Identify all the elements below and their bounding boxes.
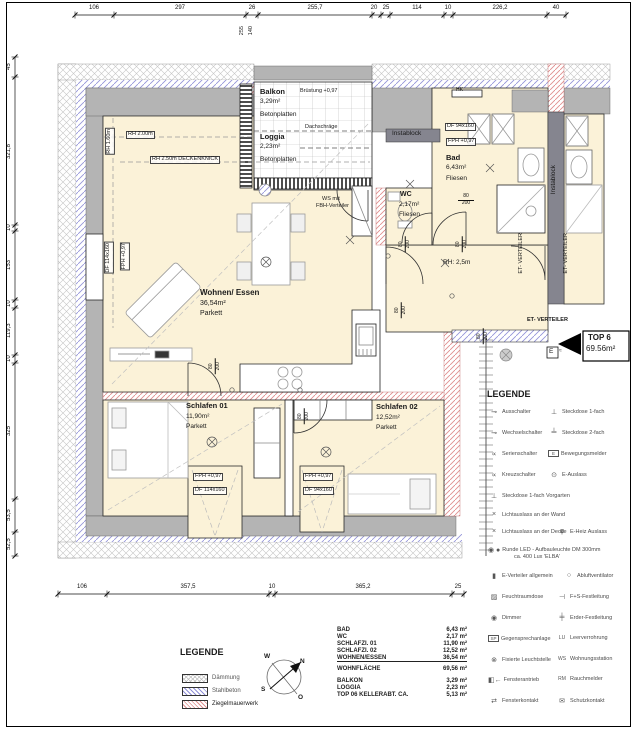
legend-item: ⊥Steckdose 1-fach Vorgarten — [488, 492, 570, 500]
sill-height-bad-label: FPH +0,97 — [446, 138, 476, 146]
legend-item: ⊥Steckdose 1-fach — [548, 408, 605, 416]
legend-item: φE-Heiz Auslass — [556, 528, 607, 535]
room-area-schlafen02: 12,52m² — [376, 414, 400, 421]
room-label-schlafen01: Schlafen 01 — [186, 402, 228, 410]
top6-area: 69.56m² — [586, 345, 615, 354]
parapet-label: Brüstung +0,97 — [300, 89, 337, 95]
dim-label: 106 — [68, 584, 96, 590]
legend-item: ◉ ●Runde LED - Aufbauleuchte DM 300mm — [488, 546, 600, 554]
table-row-total: WOHNFLÄCHE69,56 m² — [337, 666, 467, 672]
dim-label: 255,7 — [301, 5, 329, 11]
legend-item: ▮E-Verteiler allgemein — [488, 572, 553, 580]
dim-label: 10 — [434, 5, 462, 11]
dim-side-255: 255 — [240, 26, 246, 35]
dim-label: 25 — [372, 5, 400, 11]
cross-switch-icon: ∝ — [488, 471, 500, 479]
concrete-label: Stahlbeton — [212, 688, 241, 694]
roof-window-bad-label: DF 94x160 — [445, 123, 476, 131]
legend-item: ◧←Fensterantrieb — [488, 676, 539, 684]
instablock-label-v: Instablock — [550, 165, 557, 194]
dimmer-icon: ◉ — [488, 614, 500, 622]
roof-window-s02-label: DF 94x160 — [303, 487, 334, 495]
insulation-label: Dämmung — [212, 675, 240, 681]
door-size-label: 80200 — [209, 358, 222, 374]
legend-item: ⊣F+S-Festleitung — [556, 593, 609, 601]
room-area-balkon: 3,29m² — [260, 98, 280, 105]
top6-label: TOP 6 — [588, 334, 611, 343]
door-size-label: 80200 — [456, 236, 469, 252]
dim-label: 325 — [6, 417, 12, 445]
legend-item: ×Lichtauslass an der Wand — [488, 511, 565, 518]
dim-label: 321,8 — [6, 137, 12, 165]
intercom-icon: SP — [488, 635, 499, 642]
legend-item: ╪Erder-Festleitung — [556, 614, 612, 621]
room-floor-schlafen02: Parkett — [376, 424, 397, 431]
room-label-wc: WC — [400, 191, 412, 199]
table-row: WOHNEN/ESSEN36,54 m² — [337, 655, 467, 662]
room-height-200-label: RH 2.00m — [126, 131, 155, 139]
socket-outdoor-icon: ⊥ — [488, 492, 500, 500]
legend-item: ⊸Wechselschalter — [488, 429, 542, 437]
glazing-west — [240, 84, 252, 188]
dim-side-140: 140 — [249, 26, 255, 35]
et-verteiler-label-v1: ET- VERTEILER — [519, 233, 525, 274]
table-row: BAD6,43 m² — [337, 627, 467, 633]
mail-contact-icon: ✉ — [556, 697, 568, 705]
window-contact-icon: ⇄ — [488, 697, 500, 705]
legend-item: ∝Kreuzschalter — [488, 471, 536, 479]
room-floor-wohnen: Parkett — [200, 310, 222, 318]
dim-label: 10 — [6, 214, 12, 242]
dim-label: 357,5 — [174, 584, 202, 590]
e-box-label: E — [549, 348, 553, 355]
dim-label: 45 — [6, 53, 12, 81]
legend-item: ○Abluftventilator — [563, 572, 613, 579]
door-size-label: 80200 — [298, 408, 311, 424]
legend-item: ⊗Fixierte Leuchtstelle — [488, 656, 551, 664]
room-label-bad: Bad — [446, 154, 460, 162]
instablock-column — [548, 112, 564, 304]
room-area-wohnen: 36,54m² — [200, 300, 226, 308]
legend-item: ✉Schutzkontakt — [556, 697, 605, 705]
legend-electrical-title: LEGENDE — [487, 390, 531, 400]
room-label-wohnen: Wohnen/ Essen — [200, 289, 259, 298]
window-drive-icon: ◧← — [488, 676, 502, 684]
dim-label: 53,5 — [6, 501, 12, 529]
fs-line-icon: ⊣ — [556, 593, 568, 601]
dim-label: 226,2 — [486, 5, 514, 11]
dim-label: 114 — [403, 5, 431, 11]
sill-height-west-label: FPH +0,97 — [120, 242, 130, 270]
roof-slope-label: Dachschräge — [305, 125, 337, 131]
door-size-label: 80200 — [399, 236, 412, 252]
smoke-detector-icon: RM — [556, 676, 568, 682]
brick-label: Ziegelmauerwerk — [212, 701, 258, 707]
legend-item: ⇄Fensterkontakt — [488, 697, 538, 705]
socket-double-icon: ╧ — [548, 429, 560, 436]
ceiling-light-icon: × — [488, 528, 500, 535]
fan-icon: ○ — [563, 572, 575, 579]
two-way-switch-icon: ⊸ — [488, 429, 500, 437]
compass-west-label: W — [264, 653, 270, 660]
room-height-25-label: RH: 2,5m — [443, 259, 470, 266]
led-light-icon: ◉ ● — [488, 546, 500, 554]
wall-light-icon: × — [488, 511, 500, 518]
dim-label: 106 — [80, 5, 108, 11]
socket-single-icon: ⊥ — [548, 408, 560, 416]
et-verteiler-label-v2: ET- VERTEILER — [564, 233, 570, 274]
floorplan-sheet: Balkon 3,29m² Betonplatten Loggia 2,23m²… — [0, 0, 637, 729]
e-box-mark: ≈ — [559, 349, 562, 354]
e-heater-icon: φ — [556, 528, 568, 535]
dim-label: 52,5 — [6, 530, 12, 558]
room-area-schlafen01: 11,90m² — [186, 413, 209, 420]
dim-label: 26 — [238, 5, 266, 11]
table-row: WC2,17 m² — [337, 634, 467, 640]
dim-label: 10 — [6, 290, 12, 318]
towel-radiator-label: HK — [456, 88, 463, 93]
room-height-160-label: RH 1.60m — [105, 128, 115, 155]
room-floor-schlafen01: Parkett — [186, 423, 207, 430]
room-area-wc: 2,17m² — [399, 201, 419, 208]
table-row: LOGGIA2,23 m² — [337, 685, 467, 691]
dim-label: 365,2 — [349, 584, 377, 590]
dim-label: 10 — [258, 584, 286, 590]
motion-detector-icon: E — [548, 450, 559, 457]
sill-height-s02-label: FPH +0,97 — [303, 473, 333, 481]
legend-materials-title: LEGENDE — [180, 648, 224, 658]
table-row: SCHLAFZI. 0111,90 m² — [337, 641, 467, 647]
legend-item: ╧Steckdose 2-fach — [548, 429, 605, 436]
legend-item: LULeerverrohrung — [556, 635, 608, 641]
compass-east-label: O — [298, 694, 303, 701]
roof-window-west-label: DF 114x160 — [104, 242, 114, 274]
room-label-loggia: Loggia — [260, 133, 285, 141]
legend-item: EBewegungsmelder — [548, 450, 607, 457]
legend-item: ∝Serienschalter — [488, 450, 537, 458]
room-area-bad: 6,43m² — [446, 164, 466, 171]
sill-height-s01-label: FPH +0,97 — [193, 473, 223, 481]
fixed-light-icon: ⊗ — [488, 656, 500, 664]
room-area-loggia: 2,23m² — [260, 143, 280, 150]
legend-item: ⊙E-Auslass — [548, 471, 587, 479]
ceiling-kink-label: RH 2.50m DECKENKNICK — [150, 156, 220, 164]
table-row: SCHLAFZI. 0212,52 m² — [337, 648, 467, 654]
table-row: TOP 06 KELLERABT. CA.5,13 m² — [337, 692, 467, 698]
roof-window-s01-label: DF 114x160 — [193, 487, 227, 495]
dim-label: 40 — [542, 5, 570, 11]
e-outlet-icon: ⊙ — [548, 471, 560, 479]
brick-swatch — [182, 700, 208, 709]
legend-item: ×Lichtauslass an der Decke — [488, 528, 567, 535]
concrete-swatch — [182, 687, 208, 696]
ws-label-line2: FBH-Verteiler — [316, 204, 349, 210]
compass-north-label: N — [300, 658, 305, 665]
table-row: BALKON3,29 m² — [337, 678, 467, 684]
legend-item: RMRauchmelder — [556, 676, 603, 682]
dim-label: 297 — [166, 5, 194, 11]
dim-label: 119,3 — [6, 317, 12, 345]
room-floor-balkon: Betonplatten — [260, 111, 297, 118]
room-label-schlafen02: Schlafen 02 — [376, 403, 418, 411]
instablock-label-h: Instablock — [392, 130, 421, 137]
door-size-label: 80200 — [477, 328, 490, 344]
junction-box-icon: ▨ — [488, 593, 500, 601]
et-verteiler-label-h: ET- VERTEILER — [527, 318, 568, 324]
conduit-icon: LU — [556, 635, 568, 641]
door-size-label: 80200 — [458, 194, 474, 207]
room-label-balkon: Balkon — [260, 88, 285, 96]
entry-threshold — [452, 330, 548, 342]
legend-item: ca. 400 Lux 'ELBA' — [514, 554, 560, 560]
dim-label: 25 — [444, 584, 472, 590]
compass-south-label: S — [261, 686, 265, 693]
series-switch-icon: ∝ — [488, 450, 500, 458]
apartment-station-icon: WS — [556, 656, 568, 662]
dim-label: 153 — [6, 251, 12, 279]
legend-item: SPGegensprechanlage — [488, 635, 551, 642]
dim-label: 10 — [6, 345, 12, 373]
ground-line-icon: ╪ — [556, 614, 568, 621]
legend-item: WSWohnungsstation — [556, 656, 612, 662]
switch-icon: ⊸ — [488, 408, 500, 416]
room-floor-wc: Fliesen — [399, 211, 420, 218]
floorplan-drawing — [0, 0, 637, 729]
distribution-board-icon: ▮ — [488, 572, 500, 580]
door-size-label: 80200 — [395, 302, 408, 318]
legend-item: ⊸Ausschalter — [488, 408, 531, 416]
insulation-swatch — [182, 674, 208, 683]
legend-item: ▨Feuchtraumdose — [488, 593, 543, 601]
legend-item: ◉Dimmer — [488, 614, 521, 622]
room-floor-loggia: Betonplatten — [260, 156, 297, 163]
room-floor-bad: Fliesen — [446, 175, 467, 182]
